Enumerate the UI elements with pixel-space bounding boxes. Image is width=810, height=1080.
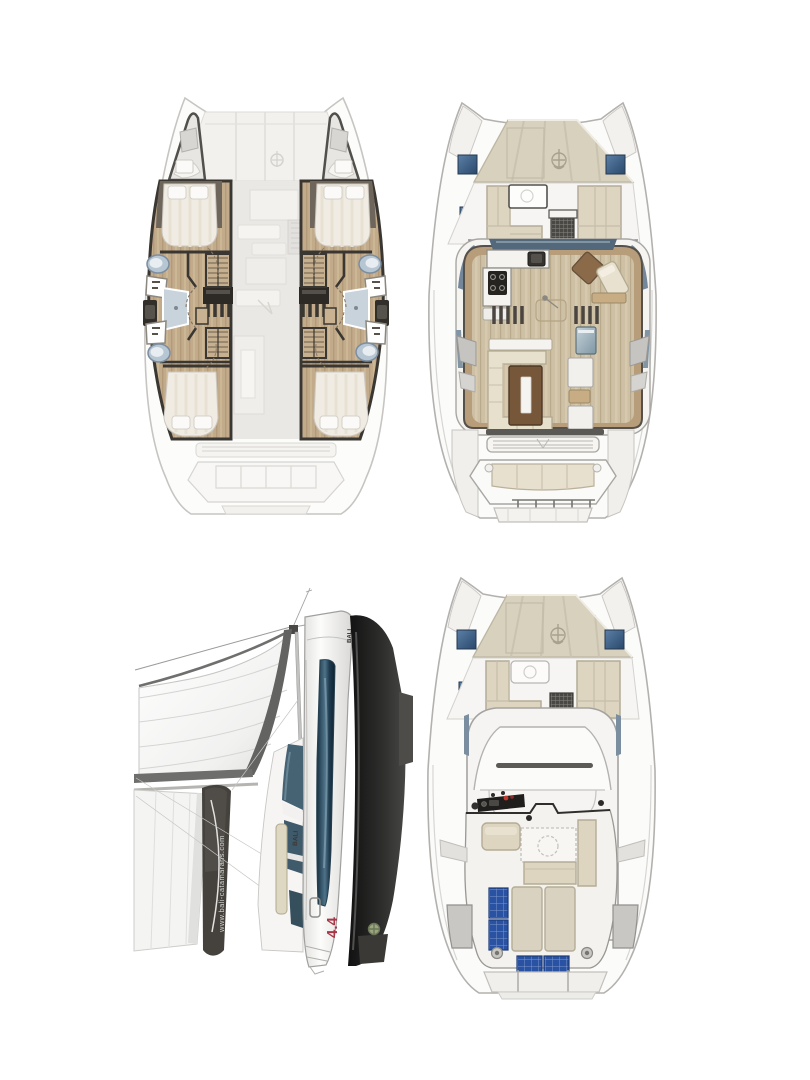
svg-text:4.4: 4.4 bbox=[324, 916, 341, 938]
svg-text:BALI: BALI bbox=[292, 830, 300, 846]
svg-text:www.bali-catamarans.com: www.bali-catamarans.com bbox=[217, 835, 226, 933]
